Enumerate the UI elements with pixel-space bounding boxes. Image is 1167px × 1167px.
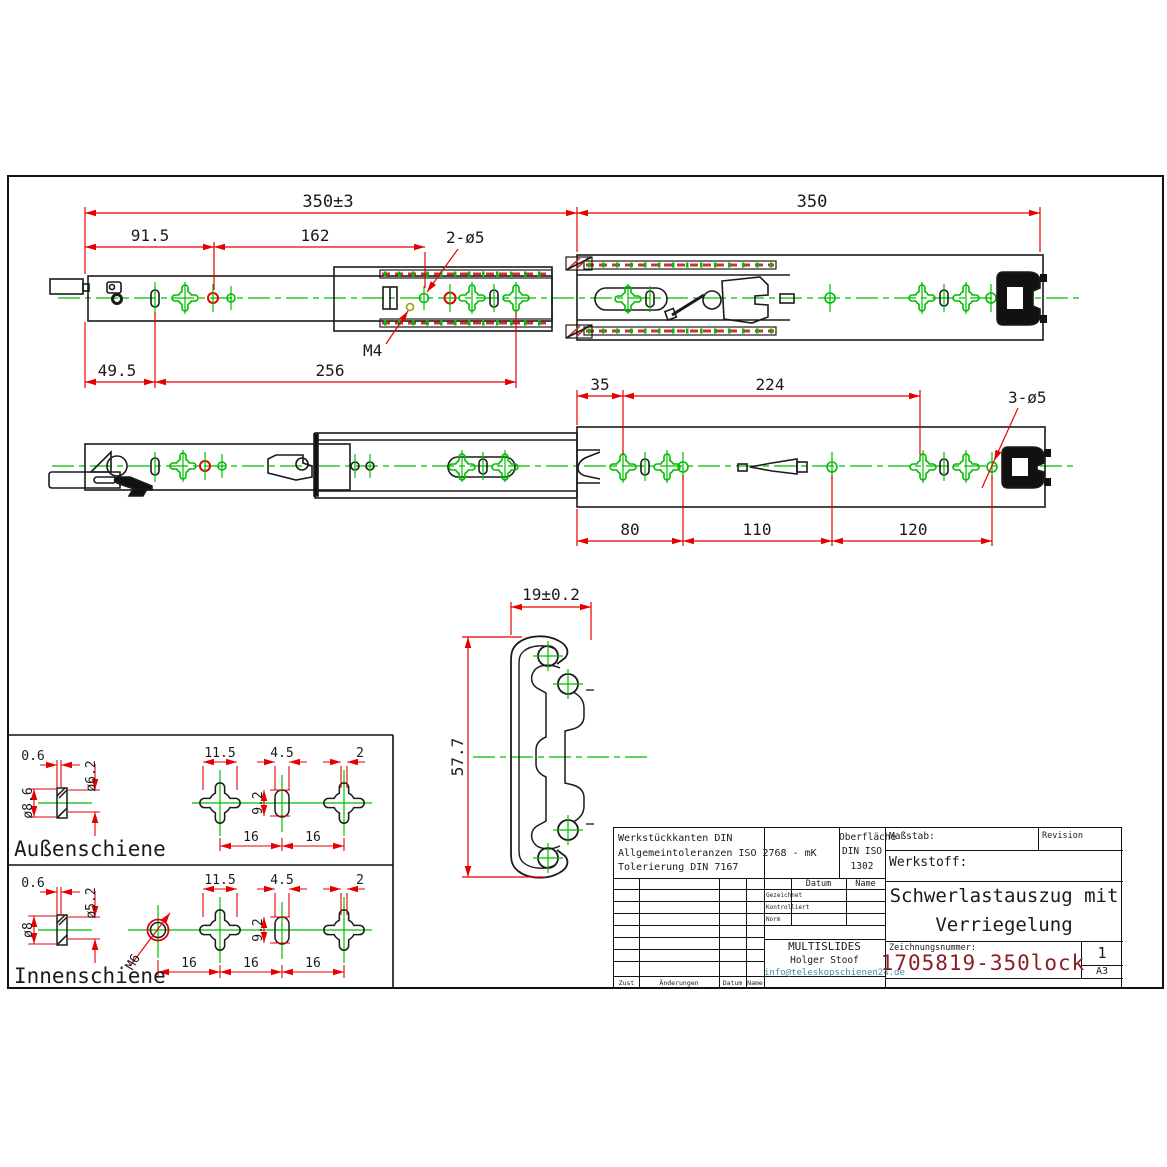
dim-outer-lip: 0.6 <box>21 749 44 764</box>
drawing-canvas: 350±3 350 91.5 162 2-ø5 M4 49.5 256 <box>0 0 1167 1167</box>
inner-rail-label: Innenschiene <box>14 964 166 988</box>
outer-rail-detail: 0.6 ø6.2 ø8.6 11.5 4.5 2 9.2 16 16 Außen… <box>14 746 372 861</box>
rev-col-aenderungen: Änderungen <box>639 977 719 989</box>
company-email: info@teleskopschienen24.de <box>764 968 885 978</box>
row-norm: Norm <box>766 916 780 923</box>
dim-350-tol: 350±3 <box>302 192 353 212</box>
surface-note: Oberfläche DIN ISO 1302 <box>839 831 885 874</box>
revision-label: Revision <box>1042 831 1083 841</box>
material-label: Werkstoff: <box>889 855 967 870</box>
dim-110: 110 <box>743 520 772 539</box>
rev-col-zust: Zust <box>614 977 639 989</box>
drawing-title: Schwerlastauszug mit Verriegelung <box>885 881 1123 941</box>
lock-end-cap <box>1002 447 1051 488</box>
col-datum: Datum <box>791 878 846 889</box>
row-gezeichnet: Gezeichnet <box>766 892 802 899</box>
dim-inner-bore: ø5.2 <box>84 887 99 918</box>
tolerance-line1: Werkstückkanten DIN <box>618 832 762 847</box>
divider <box>1038 828 1039 850</box>
dim-height-57-7: 57.7 <box>448 738 467 777</box>
dim-outer-bore: ø6.2 <box>84 760 99 791</box>
dim-outer-clover-w: 11.5 <box>204 746 235 761</box>
dim-120: 120 <box>899 520 928 539</box>
dim-outer-pitch1: 16 <box>243 830 259 845</box>
dim-inner-pitch3: 16 <box>305 956 321 971</box>
title-block: Zust Änderungen Datum Name Werkstückkant… <box>613 827 1122 988</box>
rev-col-name: Name <box>746 977 764 989</box>
company-author: Holger Stoof <box>764 955 885 966</box>
dim-inner-slot-w: 4.5 <box>270 873 293 888</box>
dim-m4: M4 <box>363 341 382 360</box>
row-kontrolliert: Kontrolliert <box>766 904 809 911</box>
top-view <box>50 255 1082 340</box>
dim-outer-pitch2: 16 <box>305 830 321 845</box>
tolerance-line2: Allgemeintoleranzen ISO 2768 - mK <box>618 847 762 862</box>
dim-91-5: 91.5 <box>131 226 170 245</box>
company-name: MULTISLIDES <box>764 940 885 953</box>
dim-2xdia5: 2-ø5 <box>446 228 485 247</box>
company-block: MULTISLIDES Holger Stoof info@teleskopsc… <box>764 940 885 978</box>
dim-outer-notch: 2 <box>356 746 364 761</box>
dim-inner-pitch1: 16 <box>181 956 197 971</box>
lock-mechanism <box>665 277 768 323</box>
dim-162: 162 <box>301 226 330 245</box>
side-view <box>49 427 1075 507</box>
dim-224: 224 <box>756 375 785 394</box>
paper-format: A3 <box>1081 965 1123 978</box>
sheet-number: 1 <box>1081 941 1123 965</box>
dim-inner-slot-h: 9.2 <box>251 918 266 941</box>
tolerance-note: Werkstückkanten DIN Allgemeintoleranzen … <box>618 832 762 876</box>
dim-outer-slot-w: 4.5 <box>270 746 293 761</box>
dim-256: 256 <box>316 361 345 380</box>
divider <box>885 978 1123 979</box>
dim-width-19: 19±0.2 <box>522 585 580 604</box>
dim-3xdia5: 3-ø5 <box>1008 388 1047 407</box>
divider <box>885 850 1123 851</box>
drawing-number: 1705819-350lock <box>885 949 1081 977</box>
rev-col-datum: Datum <box>719 977 746 989</box>
dim-35: 35 <box>590 375 609 394</box>
section-dimensions <box>462 602 591 877</box>
outer-rail-label: Außenschiene <box>14 837 166 861</box>
dim-outer-flange: ø8.6 <box>21 787 36 818</box>
dim-inner-notch: 2 <box>356 873 364 888</box>
col-name: Name <box>846 878 885 889</box>
inner-rail-detail: 0.6 ø5.2 ø8 M6 11.5 4.5 2 9.2 16 16 16 I… <box>14 873 372 988</box>
dim-outer-slot-h: 9.2 <box>251 791 266 814</box>
dim-inner-lip: 0.6 <box>21 876 44 891</box>
dim-49-5: 49.5 <box>98 361 137 380</box>
tolerance-line3: Tolerierung DIN 7167 <box>618 861 762 876</box>
dim-inner-clover-w: 11.5 <box>204 873 235 888</box>
dim-350: 350 <box>797 192 828 212</box>
scale-label: Maßstab: <box>889 831 935 842</box>
dim-inner-flange: ø8 <box>21 922 36 938</box>
dim-inner-pitch2: 16 <box>243 956 259 971</box>
dim-80: 80 <box>620 520 639 539</box>
drawing-sheet: 350±3 350 91.5 162 2-ø5 M4 49.5 256 <box>0 0 1167 1167</box>
detail-panel-box <box>8 735 393 988</box>
